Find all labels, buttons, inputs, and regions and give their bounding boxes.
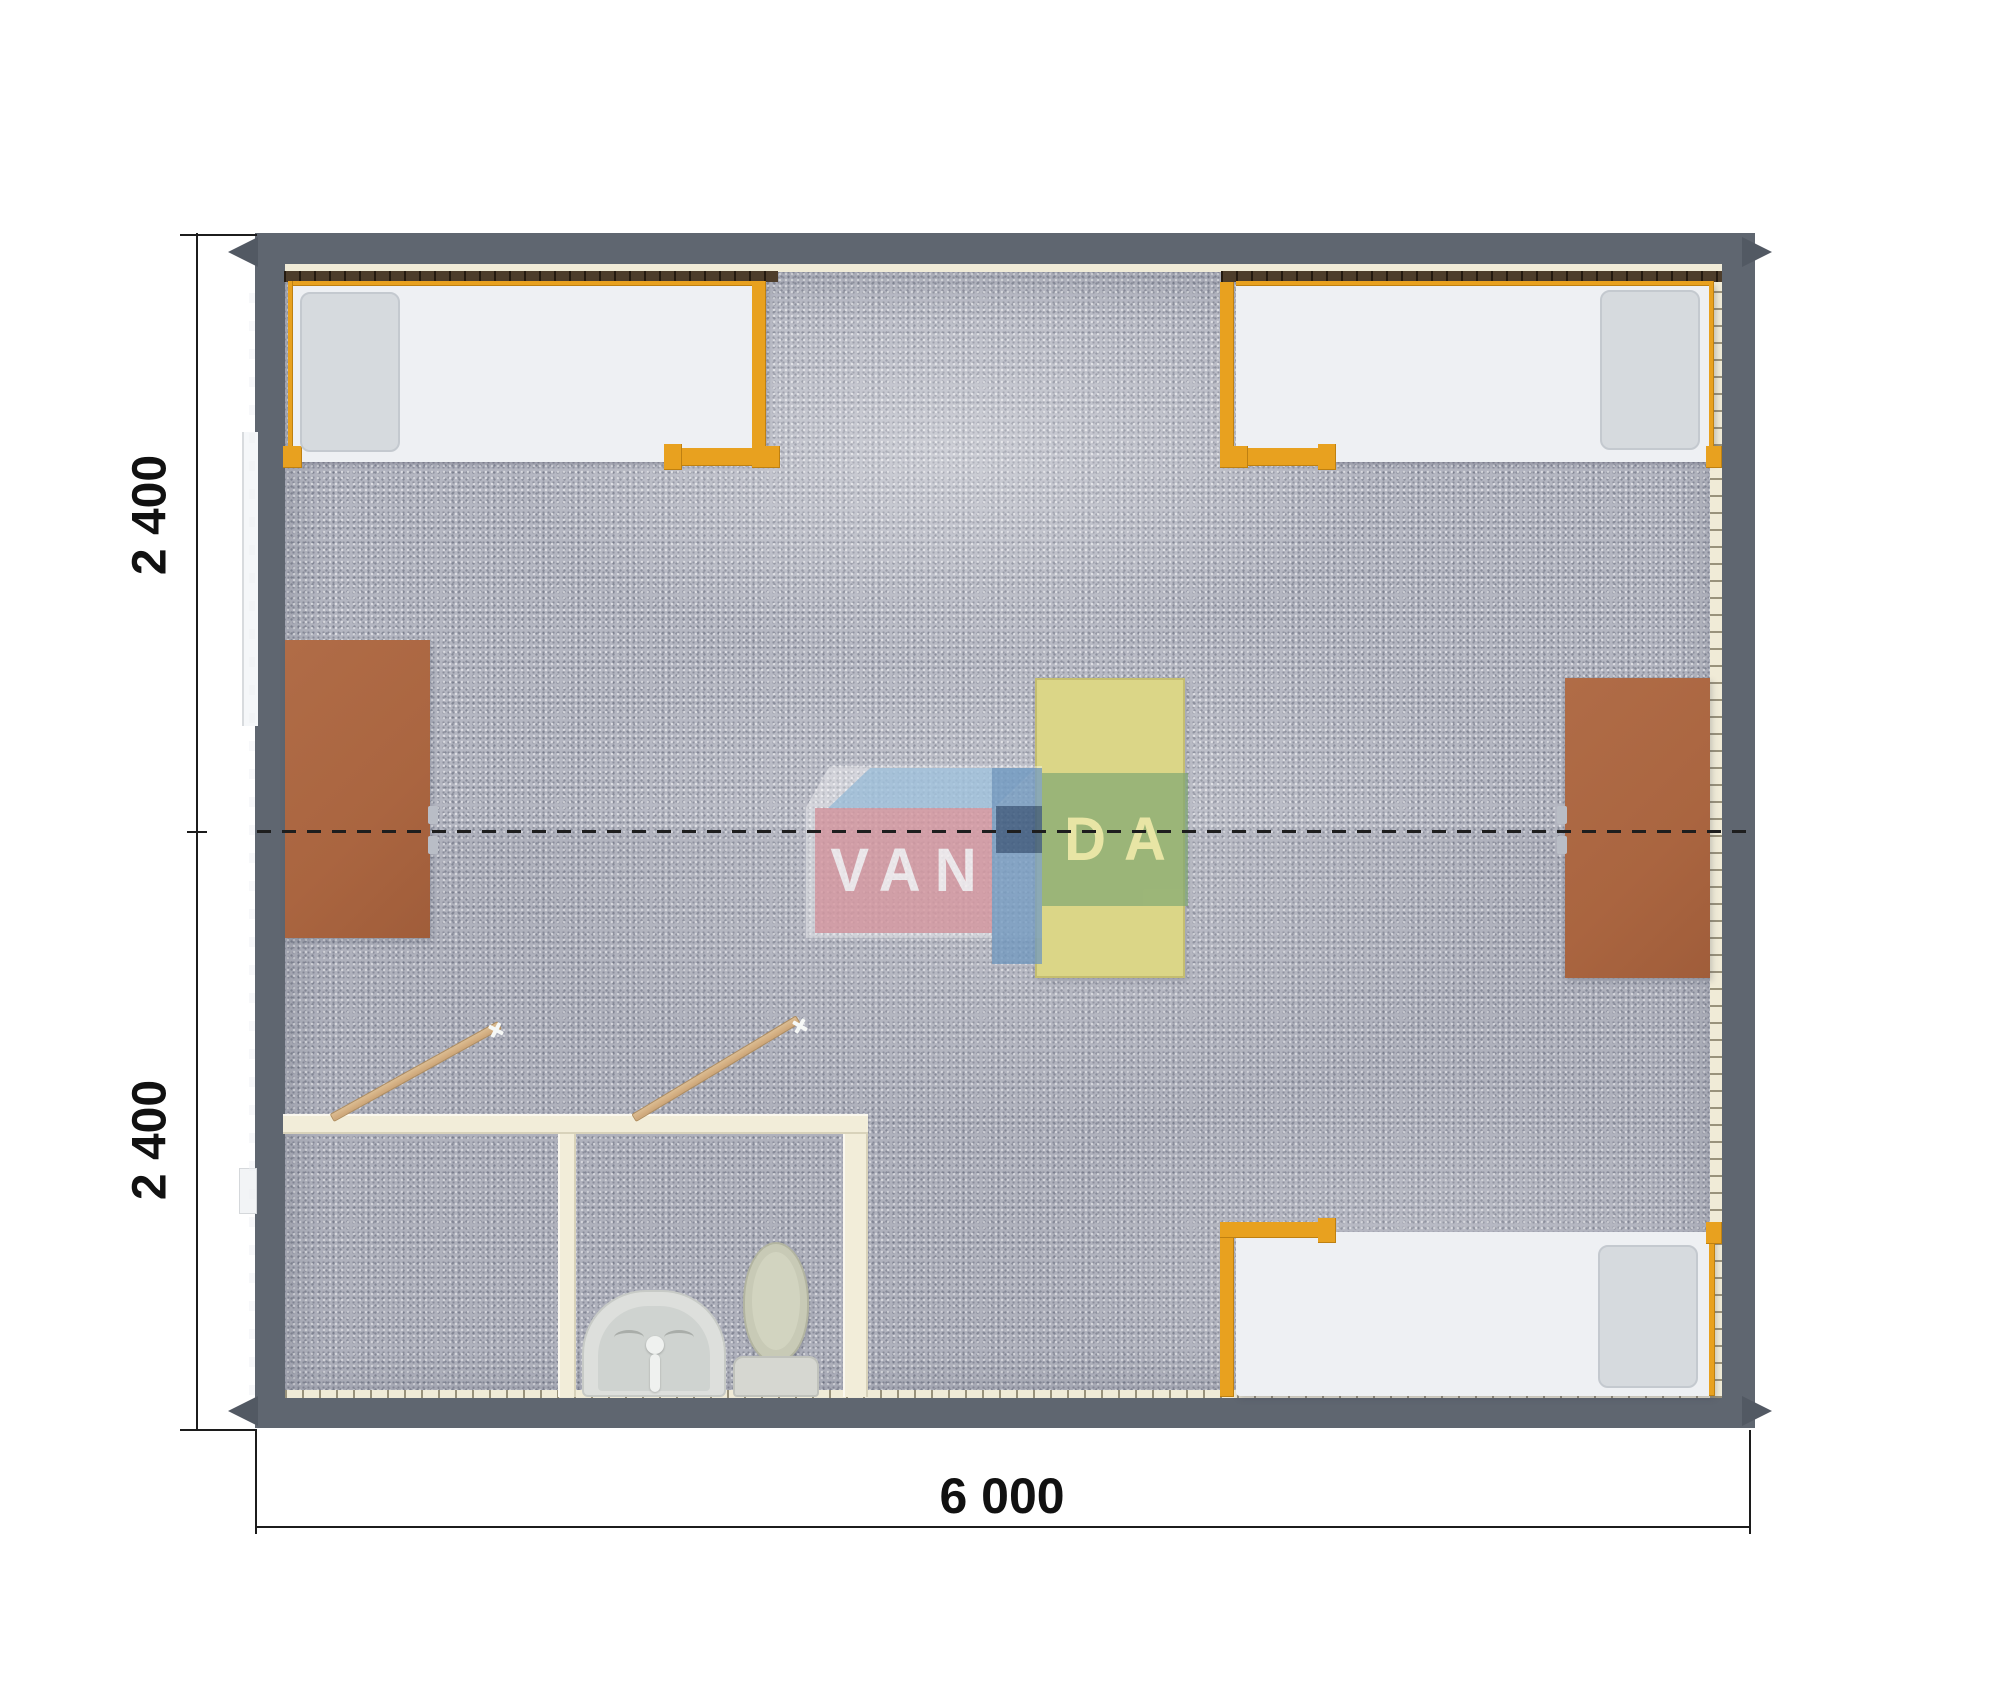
toilet-seat	[743, 1242, 809, 1362]
bed-bottom-right-frame-left	[1220, 1222, 1234, 1397]
vanda-watermark: VAN DA	[780, 740, 1210, 950]
washbasin	[582, 1290, 726, 1397]
bathroom-wall-right	[843, 1134, 868, 1397]
floor-plan-canvas: VAN DA 2 400 2 400 6 000	[0, 0, 2000, 1701]
bed-top-right-foot-corner	[1220, 446, 1248, 468]
desk-left-tab-upper	[428, 806, 438, 824]
bed-top-right-foot-tab	[1706, 446, 1722, 468]
bed-top-right-frame-right	[1709, 281, 1714, 458]
toilet-tank	[733, 1356, 819, 1397]
bed-top-right-foot-bar-tab	[1318, 444, 1336, 470]
logo-green-box: DA	[1042, 773, 1188, 906]
bed-top-left-foot-corner	[752, 446, 780, 468]
bathroom-wall-middle	[558, 1134, 576, 1397]
bed-bottom-right-frame-right	[1709, 1240, 1715, 1396]
bed-bottom-right-head-bar-tab	[1318, 1218, 1336, 1243]
bed-top-right-pillow	[1600, 290, 1700, 450]
bathroom-wall-top	[283, 1114, 868, 1134]
corner-marker-top-left	[228, 237, 258, 267]
washbasin-faucet	[646, 1336, 664, 1354]
corner-marker-bottom-left	[228, 1396, 258, 1426]
corner-marker-bottom-right	[1742, 1396, 1772, 1426]
bed-bottom-right-pillow	[1598, 1245, 1698, 1388]
dimension-label-bottom: 6 000	[939, 1467, 1064, 1525]
dimension-tick-middle	[187, 831, 207, 833]
module-joint-dashed-line	[257, 830, 1750, 833]
bed-top-left-frame-right	[752, 282, 766, 466]
logo-blue-face	[992, 768, 1042, 964]
bed-top-left-frame-top	[288, 281, 766, 286]
dimension-ext-bottom	[180, 1429, 257, 1431]
dimension-line-bottom	[255, 1526, 1751, 1528]
corner-marker-top-right	[1742, 237, 1772, 267]
dimension-label-left-top: 2 400	[123, 455, 178, 575]
bed-top-left-pillow	[300, 292, 400, 452]
bed-top-right-frame-left	[1220, 282, 1234, 466]
desk-left	[285, 640, 430, 938]
desk-right-tab-upper	[1557, 806, 1567, 824]
bed-top-left-foot-tab	[283, 446, 302, 468]
left-wall-panel-ticks	[249, 280, 255, 1395]
bed-top-right-frame-top	[1236, 281, 1714, 286]
desk-right	[1565, 678, 1710, 978]
logo-pink-box: VAN	[815, 808, 992, 933]
logo-text-da: DA	[1064, 804, 1184, 874]
dimension-ext-right-corner	[1749, 1430, 1751, 1534]
desk-left-tab-lower	[428, 836, 438, 854]
bed-top-left-frame-left	[288, 281, 293, 458]
logo-text-van: VAN	[830, 835, 990, 905]
desk-right-tab-lower	[1557, 836, 1567, 854]
dimension-ext-top	[180, 234, 257, 236]
bed-bottom-right-head-tab	[1706, 1222, 1722, 1244]
bed-top-left-foot-bar-tab	[664, 444, 682, 470]
dimension-label-left-bottom: 2 400	[123, 1080, 178, 1200]
dimension-ext-left-corner	[255, 1430, 257, 1534]
